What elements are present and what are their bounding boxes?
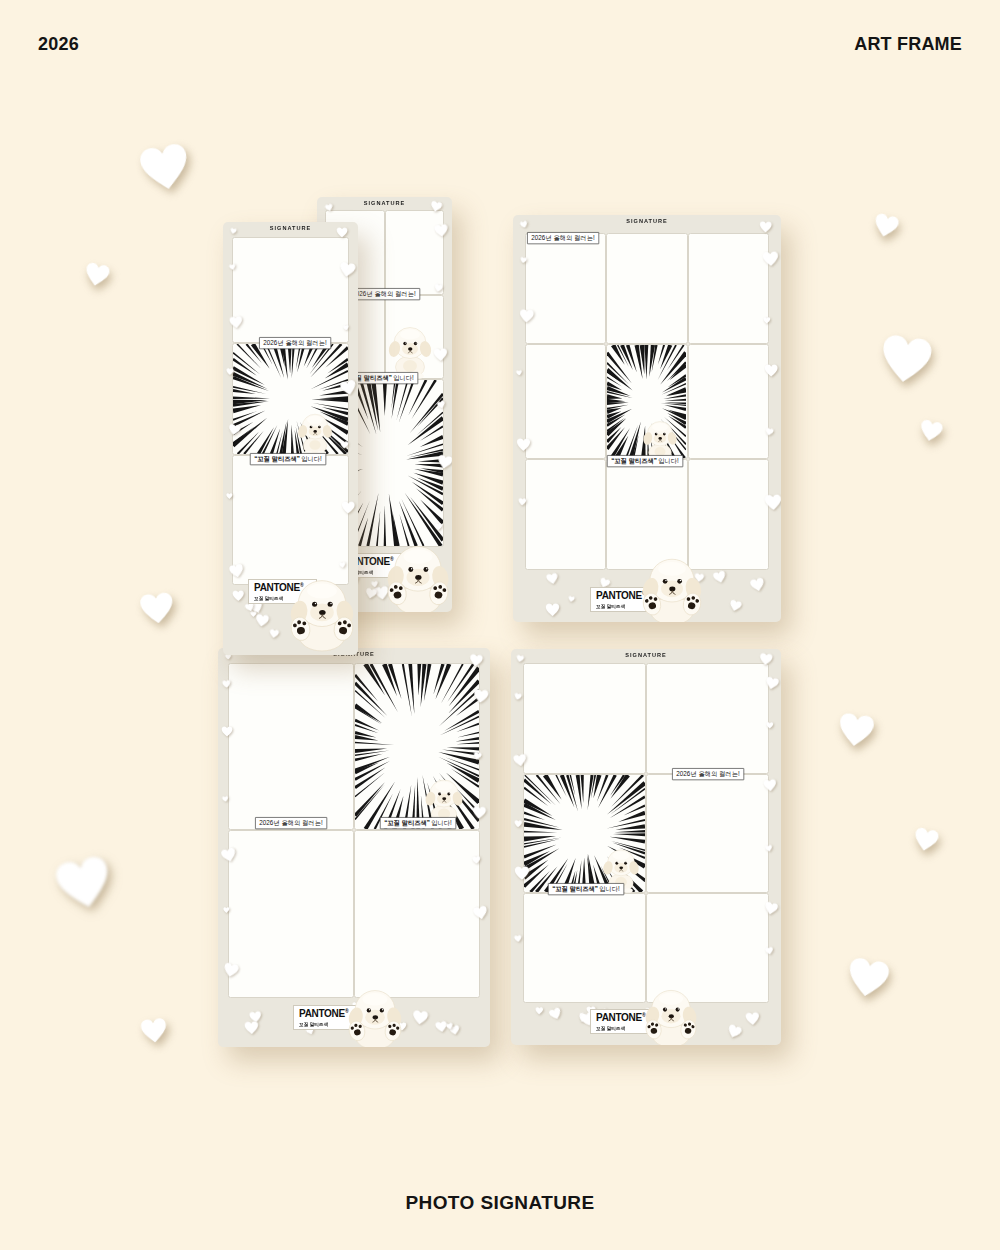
tag-text-bold: “꼬질 말티즈색”: [384, 819, 430, 826]
photo-slot: [646, 774, 769, 893]
frame-title: SIGNATURE: [562, 652, 729, 658]
maltese-puppy-image: [628, 985, 714, 1045]
speech-tag-color-answer: “꼬질 말티즈색”입니다!: [380, 817, 456, 829]
maltese-puppy-image: [295, 408, 335, 458]
heart-icon: [229, 228, 237, 235]
frame-title: SIGNATURE: [249, 225, 333, 231]
heart-icon: [547, 1006, 563, 1022]
pantone-color-name: 꼬질 말티즈색: [254, 595, 283, 598]
heart-icon: [835, 711, 877, 751]
tag-text: 입니다!: [393, 374, 414, 381]
heart-icon: [515, 654, 524, 663]
heart-icon: [917, 418, 945, 445]
art-frame-product-sheet: 2026 ART FRAME PHOTO SIGNATURE SIGNATURE…: [0, 0, 1000, 1250]
tag-text: 2026년 올해의 컬러는!: [352, 290, 415, 297]
speech-tag-color-answer: “꼬질 말티즈색”입니다!: [250, 453, 326, 465]
pantone-color-name: 꼬질 말티즈색: [596, 1025, 625, 1028]
photo-slot: [688, 344, 769, 459]
photo-slot: [385, 210, 445, 295]
speech-tag-color-answer: “꼬질 말티즈색”입니다!: [548, 883, 624, 895]
tag-text: 2026년 올해의 컬러는!: [531, 234, 594, 241]
heart-icon: [725, 1023, 743, 1041]
photo-slot: [228, 830, 354, 998]
heart-icon: [545, 572, 559, 586]
pantone-color-name: 꼬질 말티즈색: [596, 603, 625, 606]
photo-slot: [606, 233, 687, 344]
heart-icon: [82, 261, 112, 290]
heart-icon: [243, 1021, 259, 1036]
heart-icon: [135, 140, 195, 196]
photo-slot: [525, 233, 606, 344]
speech-tag-color-intro: 2026년 올해의 컬러는!: [348, 288, 420, 300]
photo-frame-grid-2x3: SIGNATURE 2026년 올해의 컬러는! “꼬질 말티즈색”입니다! P…: [511, 649, 781, 1045]
tag-text: 입니다!: [658, 457, 679, 464]
photo-slot: [646, 663, 769, 774]
tag-text: 입니다!: [431, 819, 452, 826]
heart-icon: [748, 576, 766, 593]
heart-icon: [513, 692, 522, 701]
photo-slot: [688, 233, 769, 344]
heart-icon: [911, 826, 941, 855]
tag-text-bold: “꼬질 말티즈색”: [254, 455, 300, 462]
speech-tag-color-intro: 2026년 올해의 컬러는!: [259, 337, 331, 349]
tag-text: 2026년 올해의 컬러는!: [259, 819, 322, 826]
photo-frame-grid-2x2: SIGNATURE 2026년 올해의 컬러는! “꼬질 말티즈색”입니다! P…: [218, 648, 490, 1047]
photo-slot: [523, 663, 646, 774]
frame-title: SIGNATURE: [564, 218, 730, 224]
heart-icon: [364, 587, 378, 600]
heart-icon: [870, 211, 901, 240]
collection-label: ART FRAME: [854, 34, 962, 55]
heart-icon: [513, 935, 522, 943]
speech-tag-color-intro: 2026년 올해의 컬러는!: [527, 232, 599, 244]
photo-frame-grid-3x3: SIGNATURE 2026년 올해의 컬러는! “꼬질 말티즈색”입니다!: [513, 215, 781, 622]
heart-icon: [519, 220, 528, 229]
year-label: 2026: [38, 34, 79, 55]
tag-text: 입니다!: [599, 885, 620, 892]
heart-icon: [759, 221, 773, 234]
photo-slot: [232, 455, 349, 585]
heart-icon: [411, 1009, 429, 1026]
heart-icon: [225, 654, 232, 660]
tag-text: 2026년 올해의 컬러는!: [676, 770, 739, 777]
maltese-puppy-image: [629, 553, 715, 622]
heart-icon: [137, 590, 176, 627]
heart-icon: [254, 613, 270, 628]
heart-icon: [268, 629, 280, 640]
speech-tag-color-answer: “꼬질 말티즈색”입니다!: [607, 455, 683, 467]
photo-slot: [525, 459, 606, 570]
photo-slot: [232, 237, 349, 343]
speech-tag-color-intro: 2026년 올해의 컬러는!: [672, 768, 744, 780]
footer-title: PHOTO SIGNATURE: [0, 1192, 1000, 1214]
heart-icon: [568, 595, 576, 603]
heart-icon: [876, 331, 936, 388]
frame-title: SIGNATURE: [343, 200, 427, 206]
tag-text-bold: “꼬질 말티즈색”: [552, 885, 598, 892]
heart-icon: [544, 602, 559, 616]
heart-icon: [515, 370, 522, 376]
photo-slot: [228, 663, 354, 830]
maltese-puppy-image: [337, 985, 413, 1047]
maltese-puppy-image: [382, 540, 452, 612]
photo-frame-tall-front: SIGNATURE 2026년 올해의 컬러는! “꼬질 말티즈색”입니다! P…: [223, 222, 358, 655]
pantone-color-name: 꼬질 말티즈색: [299, 1021, 328, 1024]
heart-icon: [232, 590, 245, 602]
heart-icon: [446, 1022, 455, 1030]
heart-icon: [535, 1006, 544, 1014]
tag-text-bold: “꼬질 말티즈색”: [611, 457, 657, 464]
heart-icon: [843, 954, 893, 1001]
heart-icon: [514, 819, 523, 827]
heart-icon: [728, 599, 743, 614]
tag-text: 2026년 올해의 컬러는!: [263, 339, 326, 346]
photo-slot: [354, 830, 480, 998]
heart-icon: [744, 1012, 760, 1027]
maltese-puppy-image: [285, 570, 358, 652]
tag-text: 입니다!: [301, 455, 322, 462]
speech-tag-color-intro: 2026년 올해의 컬러는!: [255, 817, 327, 829]
heart-icon: [139, 1017, 170, 1046]
photo-slot: [525, 344, 606, 459]
heart-icon: [50, 852, 118, 916]
